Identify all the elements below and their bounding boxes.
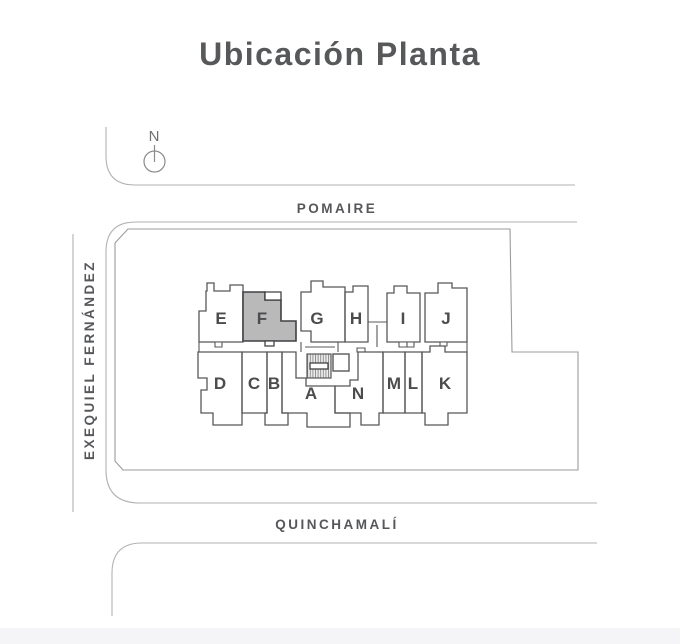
block-outline-outer xyxy=(106,222,597,503)
unit-label-j: J xyxy=(441,309,450,328)
unit-f-door-tick xyxy=(265,341,274,346)
unit-label-e: E xyxy=(215,309,226,328)
stair-core xyxy=(307,354,349,378)
unit-label-c: C xyxy=(248,374,260,393)
unit-label-i: I xyxy=(401,309,406,328)
street-label-quinchamali: QUINCHAMALÍ xyxy=(275,517,399,532)
site-map: N POMAIRE EXEQUIEL FERNÁNDEZ QUINCHAMALÍ xyxy=(0,0,680,644)
unit-label-k: K xyxy=(439,374,452,393)
unit-i-door-tick xyxy=(399,342,407,347)
unit-label-h: H xyxy=(350,309,362,328)
unit-label-g: G xyxy=(310,309,323,328)
unit-label-m: M xyxy=(387,374,401,393)
upper-block-outline xyxy=(106,127,575,185)
lower-block-outline xyxy=(112,543,597,616)
street-label-pomaire: POMAIRE xyxy=(297,201,378,216)
bottom-band xyxy=(0,628,680,644)
door-tick xyxy=(407,342,414,347)
stair-landing xyxy=(310,363,328,369)
building-plan: E F G H I J D C B A N M L K xyxy=(198,281,467,427)
unit-f-recess xyxy=(265,292,281,300)
unit-label-a: A xyxy=(305,384,317,403)
lightwell-divider xyxy=(368,322,387,347)
block-outline-inner xyxy=(115,229,578,470)
floorplan-page: Ubicación Planta N POMAIRE EXEQUIEL FERN… xyxy=(0,0,680,644)
elevator-shaft xyxy=(333,354,349,371)
unit-label-l: L xyxy=(408,374,418,393)
unit-label-d: D xyxy=(214,374,226,393)
north-indicator: N xyxy=(144,128,165,172)
unit-label-n: N xyxy=(352,384,364,403)
unit-label-f: F xyxy=(257,309,267,328)
corridor-lines xyxy=(199,342,467,352)
door-tick xyxy=(215,342,222,347)
unit-label-b: B xyxy=(268,374,280,393)
street-label-exequiel-fernandez: EXEQUIEL FERNÁNDEZ xyxy=(82,260,97,460)
north-label: N xyxy=(149,128,160,145)
